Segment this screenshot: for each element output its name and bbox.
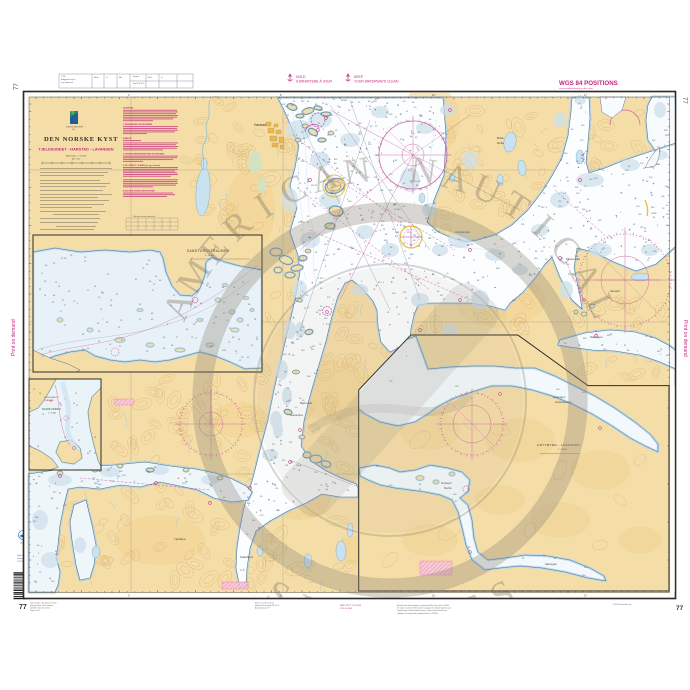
svg-text:20: 20 <box>59 403 61 405</box>
svg-text:Tidevann referert sjøkartnull: Tidevann referert sjøkartnull <box>133 215 156 218</box>
svg-text:STATENS KARTVERK: STATENS KARTVERK <box>66 126 84 129</box>
svg-text:Mts: Mts <box>119 76 122 79</box>
svg-text:77-IV 50: 77-IV 50 <box>17 561 24 563</box>
svg-text:Dei siøkart / punkt som blir n: Dei siøkart / punkt som blir nytta til n… <box>397 607 452 610</box>
svg-text:Målestokk 1 : 50 000: Målestokk 1 : 50 000 <box>66 155 87 158</box>
svg-text:Lavangen: Lavangen <box>553 395 566 399</box>
svg-text:Årlig endring 0,2° E: Årlig endring 0,2° E <box>255 607 270 610</box>
svg-text:Salangen: Salangen <box>590 335 603 339</box>
svg-text:over sjokartene: over sjokartene <box>61 81 73 84</box>
svg-text:4 MILITÆR ØVINGSVIRKSOMHET: 4 MILITÆR ØVINGSVIRKSOMHET <box>123 189 156 192</box>
svg-text:3´: 3´ <box>128 94 130 97</box>
svg-text:20: 20 <box>71 427 73 429</box>
svg-text:Marts: Marts <box>94 76 99 79</box>
svg-text:HOLD: HOLD <box>296 75 306 79</box>
svg-text:17´: 17´ <box>584 595 588 598</box>
svg-text:27: 27 <box>76 423 78 425</box>
svg-text:RAMSUNDET: RAMSUNDET <box>42 407 61 411</box>
svg-text:KART NR 77 UTG 2014: KART NR 77 UTG 2014 <box>340 604 362 607</box>
svg-text:2 FERGESTREKNINGER MED KRYSSE: 2 FERGESTREKNINGER MED KRYSSENDE <box>123 154 165 156</box>
svg-text:Print on demand: Print on demand <box>11 319 17 356</box>
svg-text:KABLER: KABLER <box>123 137 132 140</box>
svg-text:Ed nr: Ed nr <box>148 77 153 79</box>
svg-text:32: 32 <box>78 440 80 442</box>
svg-text:40: 40 <box>87 453 89 455</box>
svg-text:8´: 8´ <box>280 94 282 97</box>
svg-text:1 MERKNADER OM GRUNNER: 1 MERKNADER OM GRUNNER <box>123 123 153 126</box>
svg-text:Harstad: Harstad <box>254 123 266 127</box>
svg-text:77: 77 <box>681 97 687 104</box>
svg-text:77: 77 <box>19 604 27 611</box>
svg-text:13´: 13´ <box>432 595 436 598</box>
svg-text:77: 77 <box>676 605 684 612</box>
svg-text:ADVARSEL: ADVARSEL <box>123 107 135 110</box>
svg-text:Tjeldøya: Tjeldøya <box>174 537 186 541</box>
svg-text:Sept 7 bl 12 m: Sept 7 bl 12 m <box>133 82 145 85</box>
svg-text:POD 10-2014: POD 10-2014 <box>340 608 353 610</box>
svg-text:DEN NORSKE KYST: DEN NORSKE KYST <box>44 136 118 143</box>
svg-text:24: 24 <box>94 437 96 439</box>
svg-text:77: 77 <box>14 83 20 90</box>
svg-text:FORSVARETS: FORSVARETS <box>44 396 59 399</box>
svg-text:17´: 17´ <box>584 94 588 97</box>
svg-text:Print on demand: Print on demand <box>682 320 688 357</box>
svg-text:31: 31 <box>75 393 77 395</box>
svg-text:3´: 3´ <box>128 595 130 598</box>
svg-text:Fiskefjord: Fiskefjord <box>240 555 253 559</box>
svg-text:Ajourført etter Etterretninger: Ajourført etter Etterretninger for sjøfa… <box>397 604 450 607</box>
svg-text:KEEP: KEEP <box>354 75 364 79</box>
svg-text:1 726: 1 726 <box>61 76 66 78</box>
svg-text:Utgave 2014: Utgave 2014 <box>30 609 40 612</box>
svg-text:updated to the information pub: updated to the information published in … <box>397 612 438 615</box>
svg-text:13´: 13´ <box>432 94 436 97</box>
svg-text:© 2014 Kartverket sjø: © 2014 Kartverket sjø <box>612 603 632 606</box>
svg-text:Nautisk: Nautisk <box>133 75 139 78</box>
svg-text:Oppdateringar til dette sjøkar: Oppdateringar til dette sjøkartet finn e… <box>397 609 447 612</box>
svg-text:16: 16 <box>42 414 44 416</box>
svg-text:11: 11 <box>76 405 78 407</box>
svg-text:15: 15 <box>94 453 96 455</box>
svg-text:18: 18 <box>37 446 39 448</box>
svg-text:SJØKARTENE À JOUR: SJØKARTENE À JOUR <box>296 79 332 83</box>
svg-text:37: 37 <box>33 389 35 391</box>
svg-text:(60° 15´): (60° 15´) <box>72 158 81 161</box>
svg-text:20: 20 <box>89 451 91 453</box>
svg-text:beliggenhet og ko: beliggenhet og ko <box>61 78 75 81</box>
svg-text:1 : 25 000: 1 : 25 000 <box>48 412 56 414</box>
svg-text:26: 26 <box>60 405 62 407</box>
svg-text:OMRÅDE: OMRÅDE <box>44 399 54 402</box>
svg-text:3 SKYTEFELT I SJØEN (se også: 3 SKYTEFELT I SJØEN (se også karter) <box>123 164 160 167</box>
svg-text:TJELDSUNDET - HARSTAD - LAVANG: TJELDSUNDET - HARSTAD - LAVANGEN <box>39 148 114 152</box>
svg-text:WGS 84 POSITIONS: WGS 84 POSITIONS <box>559 80 618 87</box>
svg-text:YOUR WATERWAYS CLEAN: YOUR WATERWAYS CLEAN <box>354 79 399 83</box>
svg-text:Sjøvegan: Sjøvegan <box>545 562 557 566</box>
svg-text:20: 20 <box>39 393 41 395</box>
svg-text:can be plotted directly on thi: can be plotted directly on this chart <box>559 87 593 90</box>
svg-text:Rolla: Rolla <box>497 141 504 145</box>
svg-text:24: 24 <box>73 403 75 405</box>
svg-text:Bolla: Bolla <box>497 136 504 140</box>
